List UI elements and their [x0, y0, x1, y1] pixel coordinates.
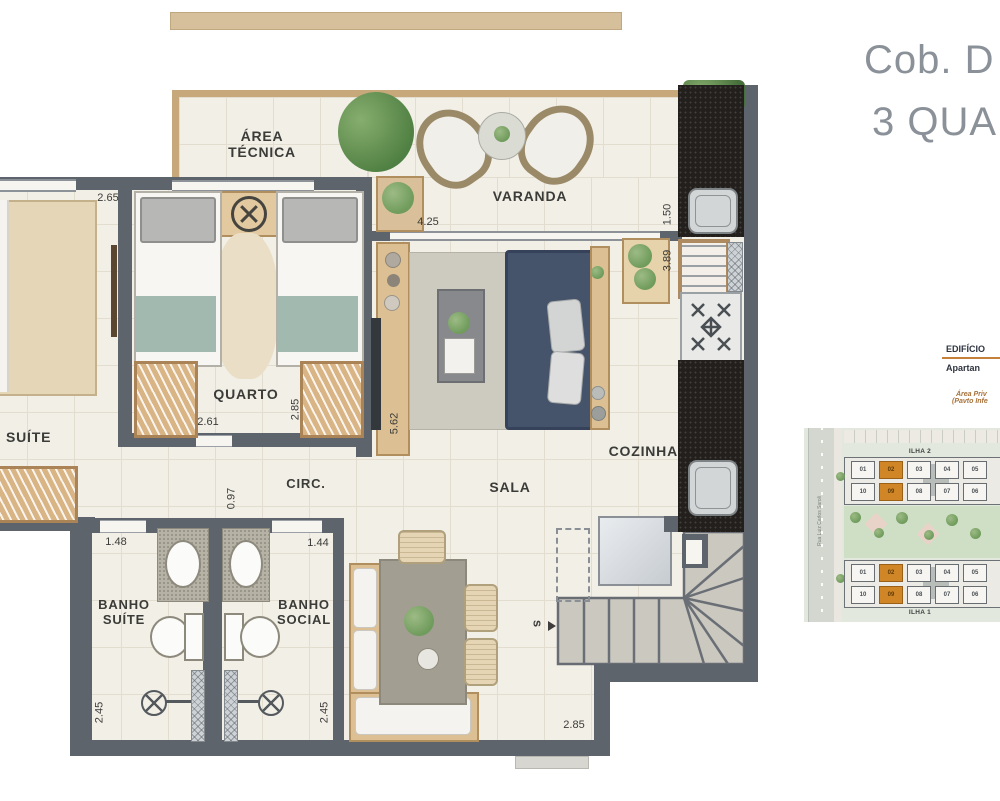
stairs-glass-panel	[598, 516, 672, 586]
map-block-ilha2: 0102030405 1009080706	[844, 457, 1000, 505]
balcony-door-stub-left	[368, 231, 392, 241]
dim-banho-social-width: 1.44	[300, 538, 336, 549]
quarto-bed-1-blanket	[136, 296, 216, 352]
label-sala: SALA	[480, 479, 540, 495]
map-tree-2	[874, 528, 884, 538]
banho-social-shower-glass	[224, 670, 238, 742]
map-parking-row	[844, 430, 1000, 443]
tv-panel	[371, 318, 381, 430]
map-unit-05: 05	[963, 461, 987, 479]
kitchen-sink-top	[688, 188, 738, 234]
map-unit-02: 02	[879, 461, 903, 479]
varanda-planter-plant	[382, 182, 414, 214]
map-tree-5	[946, 514, 958, 526]
dining-chair-top	[398, 530, 446, 564]
label-banho-suite-line1: BANHO	[74, 598, 174, 613]
map-tree-7	[836, 472, 845, 481]
map-sidewalk	[834, 428, 842, 622]
banho-suite-shower-arm	[165, 700, 193, 703]
info-subheading: Apartan	[946, 363, 1000, 373]
banho-social-shower-head	[258, 690, 284, 716]
dim-quarto-depth: 2.85	[291, 392, 302, 428]
outside-area-stairs	[610, 682, 770, 757]
coffee-table-tray	[444, 338, 475, 374]
banho-suite-door	[100, 520, 146, 533]
label-area-tecnica: ÁREA TÉCNICA	[202, 128, 322, 160]
map-unit-09: 09	[879, 483, 903, 501]
dim-sala-depth: 5.62	[390, 406, 401, 442]
map-unit-07: 07	[935, 483, 959, 501]
map-unit-10: 10	[851, 483, 875, 501]
dining-bench-cushion-1	[353, 568, 377, 628]
stairs-direction-marker: s	[531, 614, 546, 634]
label-banho-suite: BANHO SUÍTE	[74, 598, 174, 628]
label-banho-suite-line2: SUÍTE	[74, 613, 174, 628]
map-unit-row: 1009080706	[851, 586, 987, 604]
quarto-bed-2-blanket	[278, 296, 358, 352]
map-unit-05: 05	[963, 564, 987, 582]
page-title-line1: Cob. D	[864, 38, 995, 83]
map-unit-06: 06	[963, 483, 987, 501]
dining-table-plant	[404, 606, 434, 636]
wall-bath-left	[70, 518, 92, 756]
map-unit-01: 01	[851, 461, 875, 479]
label-banho-social-line1: BANHO	[254, 598, 354, 613]
balcony-sliding-door	[390, 231, 660, 241]
dim-varanda-width: 4.25	[410, 217, 446, 228]
map-ilha1-label: ILHA 1	[900, 609, 940, 616]
wall-stairs-bottom	[594, 664, 758, 682]
quarto-bed-2-pillow	[282, 197, 358, 243]
outside-area-left	[0, 531, 71, 801]
label-varanda: VARANDA	[470, 188, 590, 204]
map-tree-1	[850, 512, 861, 523]
label-banho-social: BANHO SOCIAL	[254, 598, 354, 628]
banho-suite-sink	[165, 540, 201, 588]
map-tree-6	[970, 528, 981, 539]
dim-banho-social-depth: 2.45	[320, 695, 331, 731]
suite-tv-panel	[111, 245, 117, 337]
dim-cozinha-width: 1.50	[663, 197, 674, 233]
map-unit-04: 04	[935, 564, 959, 582]
banho-suite-toilet-tank	[184, 613, 204, 661]
map-tree-4	[924, 530, 934, 540]
banho-social-sink	[229, 540, 263, 588]
info-accent-rule	[942, 357, 1000, 359]
stairs-void-dashed	[556, 528, 590, 602]
dim-suite-width: 2.65	[90, 193, 126, 204]
kitchen-dishwasher	[678, 239, 730, 299]
label-suite: SUÍTE	[6, 429, 51, 445]
dim-circ-width: 0.97	[227, 481, 238, 517]
quarto-rug	[214, 233, 278, 379]
kitchen-sink-bottom	[688, 460, 738, 516]
map-unit-06: 06	[963, 586, 987, 604]
tv-rack-decor-3	[384, 295, 400, 311]
dining-chair-right-2	[464, 638, 498, 686]
wall-bottom	[70, 740, 610, 756]
quarto-door	[196, 435, 232, 447]
wall-bath-right	[333, 518, 344, 756]
stairs-direction-arrow	[548, 621, 556, 631]
map-unit-row: 0102030405	[851, 461, 987, 479]
suite-bed-sheet	[0, 200, 9, 392]
dim-banho-suite-depth: 2.45	[95, 695, 106, 731]
tv-rack-decor-1	[385, 252, 401, 268]
quarto-bed-1-pillow	[140, 197, 216, 243]
banho-suite-shower-head	[141, 690, 167, 716]
suite-window	[0, 179, 76, 192]
map-unit-10: 10	[851, 586, 875, 604]
map-unit-03: 03	[907, 461, 931, 479]
banho-social-door	[272, 520, 322, 533]
dining-table-bowl	[417, 648, 439, 670]
dim-cozinha-depth: 3.89	[663, 243, 674, 279]
pergola-bar	[170, 12, 622, 30]
label-area-tecnica-line1: ÁREA	[202, 128, 322, 144]
door-mat	[515, 756, 589, 769]
wall-step	[594, 676, 610, 746]
label-quarto: QUARTO	[186, 386, 306, 402]
floor-plan-page: { "page": { "title_line1": "Cob. D", "ti…	[0, 0, 1000, 800]
dining-chair-right-1	[464, 584, 498, 632]
sofa-pillow-1	[546, 298, 585, 353]
map-unit-row: 1009080706	[851, 483, 987, 501]
console-decor-1	[591, 386, 605, 400]
map-unit-03: 03	[907, 564, 931, 582]
map-unit-row: 0102030405	[851, 564, 987, 582]
dim-banho-suite-width: 1.48	[98, 537, 134, 548]
sofa-pillow-2	[547, 351, 585, 406]
coffee-table-plant	[448, 312, 470, 334]
quarto-wardrobe-2	[300, 361, 364, 438]
console-plant	[591, 266, 604, 279]
label-banho-social-line2: SOCIAL	[254, 613, 354, 628]
map-unit-07: 07	[935, 586, 959, 604]
kitchen-cooktop	[680, 292, 742, 362]
suite-wardrobe	[0, 466, 78, 523]
info-note-line2: (Pavto Infe	[946, 398, 1000, 405]
console-decor-2	[591, 406, 606, 421]
map-street-name: Rua Luiz Carlos Saroli	[817, 476, 823, 566]
map-unit-09: 09	[879, 586, 903, 604]
map-unit-04: 04	[935, 461, 959, 479]
dim-quarto-width: 2.61	[190, 417, 226, 428]
divider-planter-plant-2	[634, 268, 656, 290]
divider-planter-plant-1	[628, 244, 652, 268]
tv-rack-decor-2	[387, 274, 400, 287]
label-cozinha: COZINHA	[578, 443, 678, 459]
label-circ: CIRC.	[276, 477, 336, 492]
map-block-ilha1: 0102030405 1009080706	[844, 560, 1000, 608]
map-unit-08: 08	[907, 483, 931, 501]
dim-stairs-width: 2.85	[556, 720, 592, 731]
banho-suite-shower-glass	[191, 670, 205, 742]
varanda-table-plant	[494, 126, 510, 142]
map-unit-01: 01	[851, 564, 875, 582]
suite-bed	[0, 200, 97, 396]
wall-right	[744, 85, 758, 682]
kitchen-duct	[727, 242, 743, 292]
info-note-line1: Área Priv	[946, 391, 1000, 398]
label-area-tecnica-line2: TÉCNICA	[202, 144, 322, 160]
info-heading: EDIFÍCIO	[946, 344, 1000, 354]
varanda-plant-large	[338, 92, 414, 172]
map-tree-3	[896, 512, 908, 524]
map-ilha2-label: ILHA 2	[900, 448, 940, 455]
ceiling-fan-icon	[231, 196, 267, 232]
site-map: Rua Luiz Carlos Saroli ILHA 2 0102030405…	[804, 428, 1000, 622]
wall-suite-quarto-divider	[118, 188, 132, 435]
info-panel: EDIFÍCIO Apartan Área Priv (Pavto Infe	[946, 344, 1000, 405]
map-unit-02: 02	[879, 564, 903, 582]
page-title-line2: 3 QUA	[872, 100, 997, 145]
map-unit-08: 08	[907, 586, 931, 604]
dining-bench-cushion-2	[353, 630, 377, 690]
